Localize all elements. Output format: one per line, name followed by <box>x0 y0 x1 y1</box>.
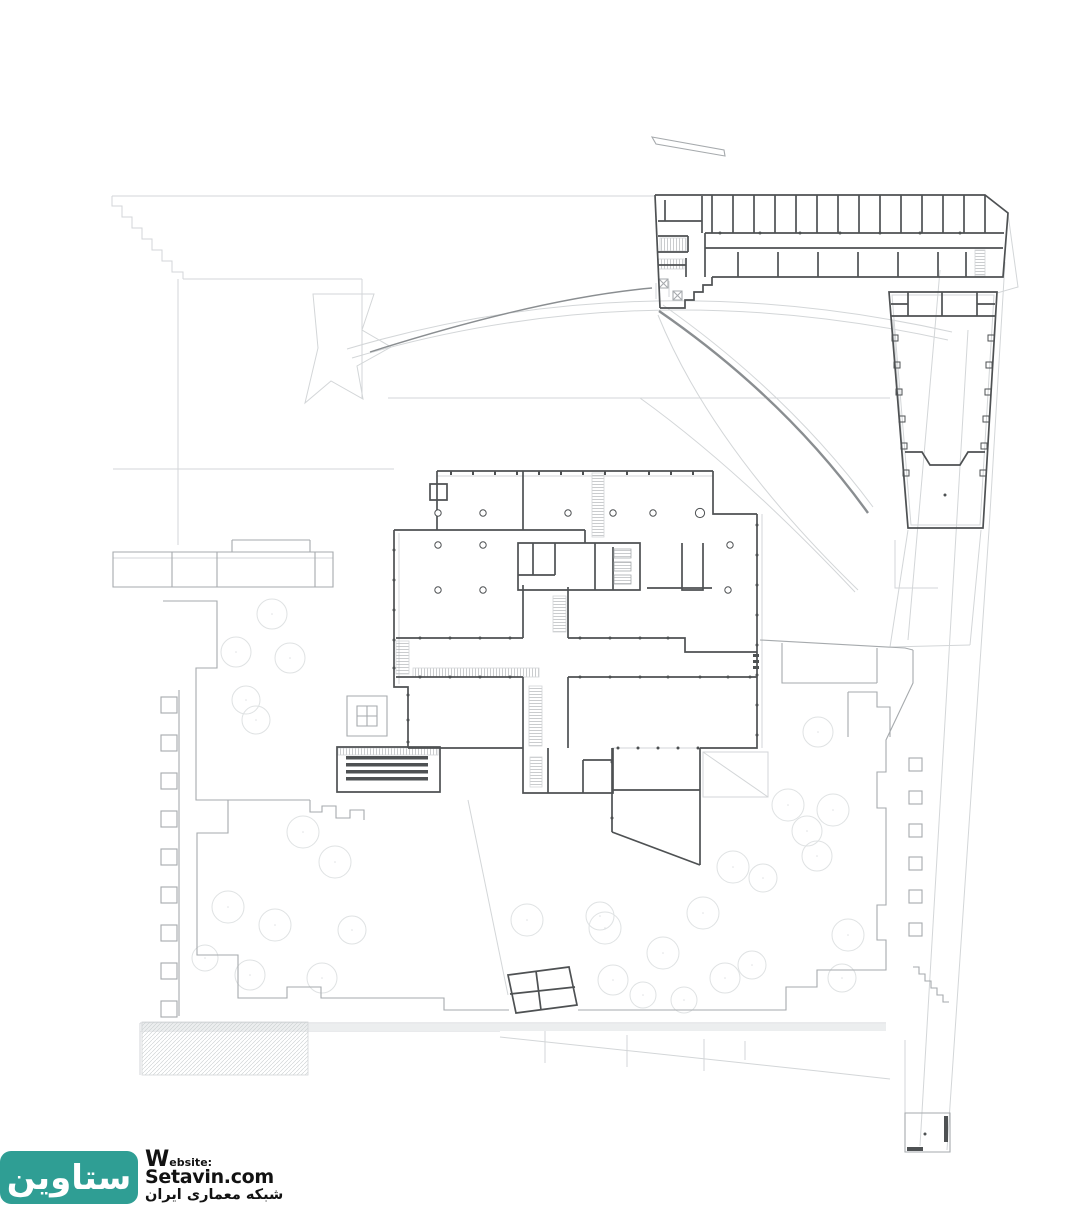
trees <box>192 599 864 1013</box>
setavin-logo-text: ستاوین <box>7 1161 132 1195</box>
curved-wall-sweep <box>659 311 868 513</box>
dark-solid-elements <box>346 654 948 1151</box>
central-building <box>337 471 757 1013</box>
north-wing-building <box>655 195 1008 308</box>
column-rings <box>435 508 733 593</box>
site-context-mid <box>113 137 950 1152</box>
setavin-watermark: ستاوین Website: Setavin.com شبکه معماری … <box>0 1151 283 1204</box>
arc-walkway <box>370 288 652 352</box>
hatched-stairs-and-ramps <box>142 238 985 1075</box>
east-hall-pilasters <box>892 335 994 476</box>
setavin-logo-badge: ستاوین <box>0 1151 138 1204</box>
core-stair-rooms <box>614 549 631 584</box>
east-hall-building <box>889 292 997 528</box>
site-plan-drawing <box>0 0 1080 1208</box>
tagline-persian: شبکه معماری ایران <box>145 1188 283 1203</box>
watermark-text-block: Website: Setavin.com شبکه معماری ایران <box>145 1151 283 1204</box>
floor-plan-page: ستاوین Website: Setavin.com شبکه معماری … <box>0 0 1080 1208</box>
website-url: Setavin.com <box>145 1168 283 1188</box>
